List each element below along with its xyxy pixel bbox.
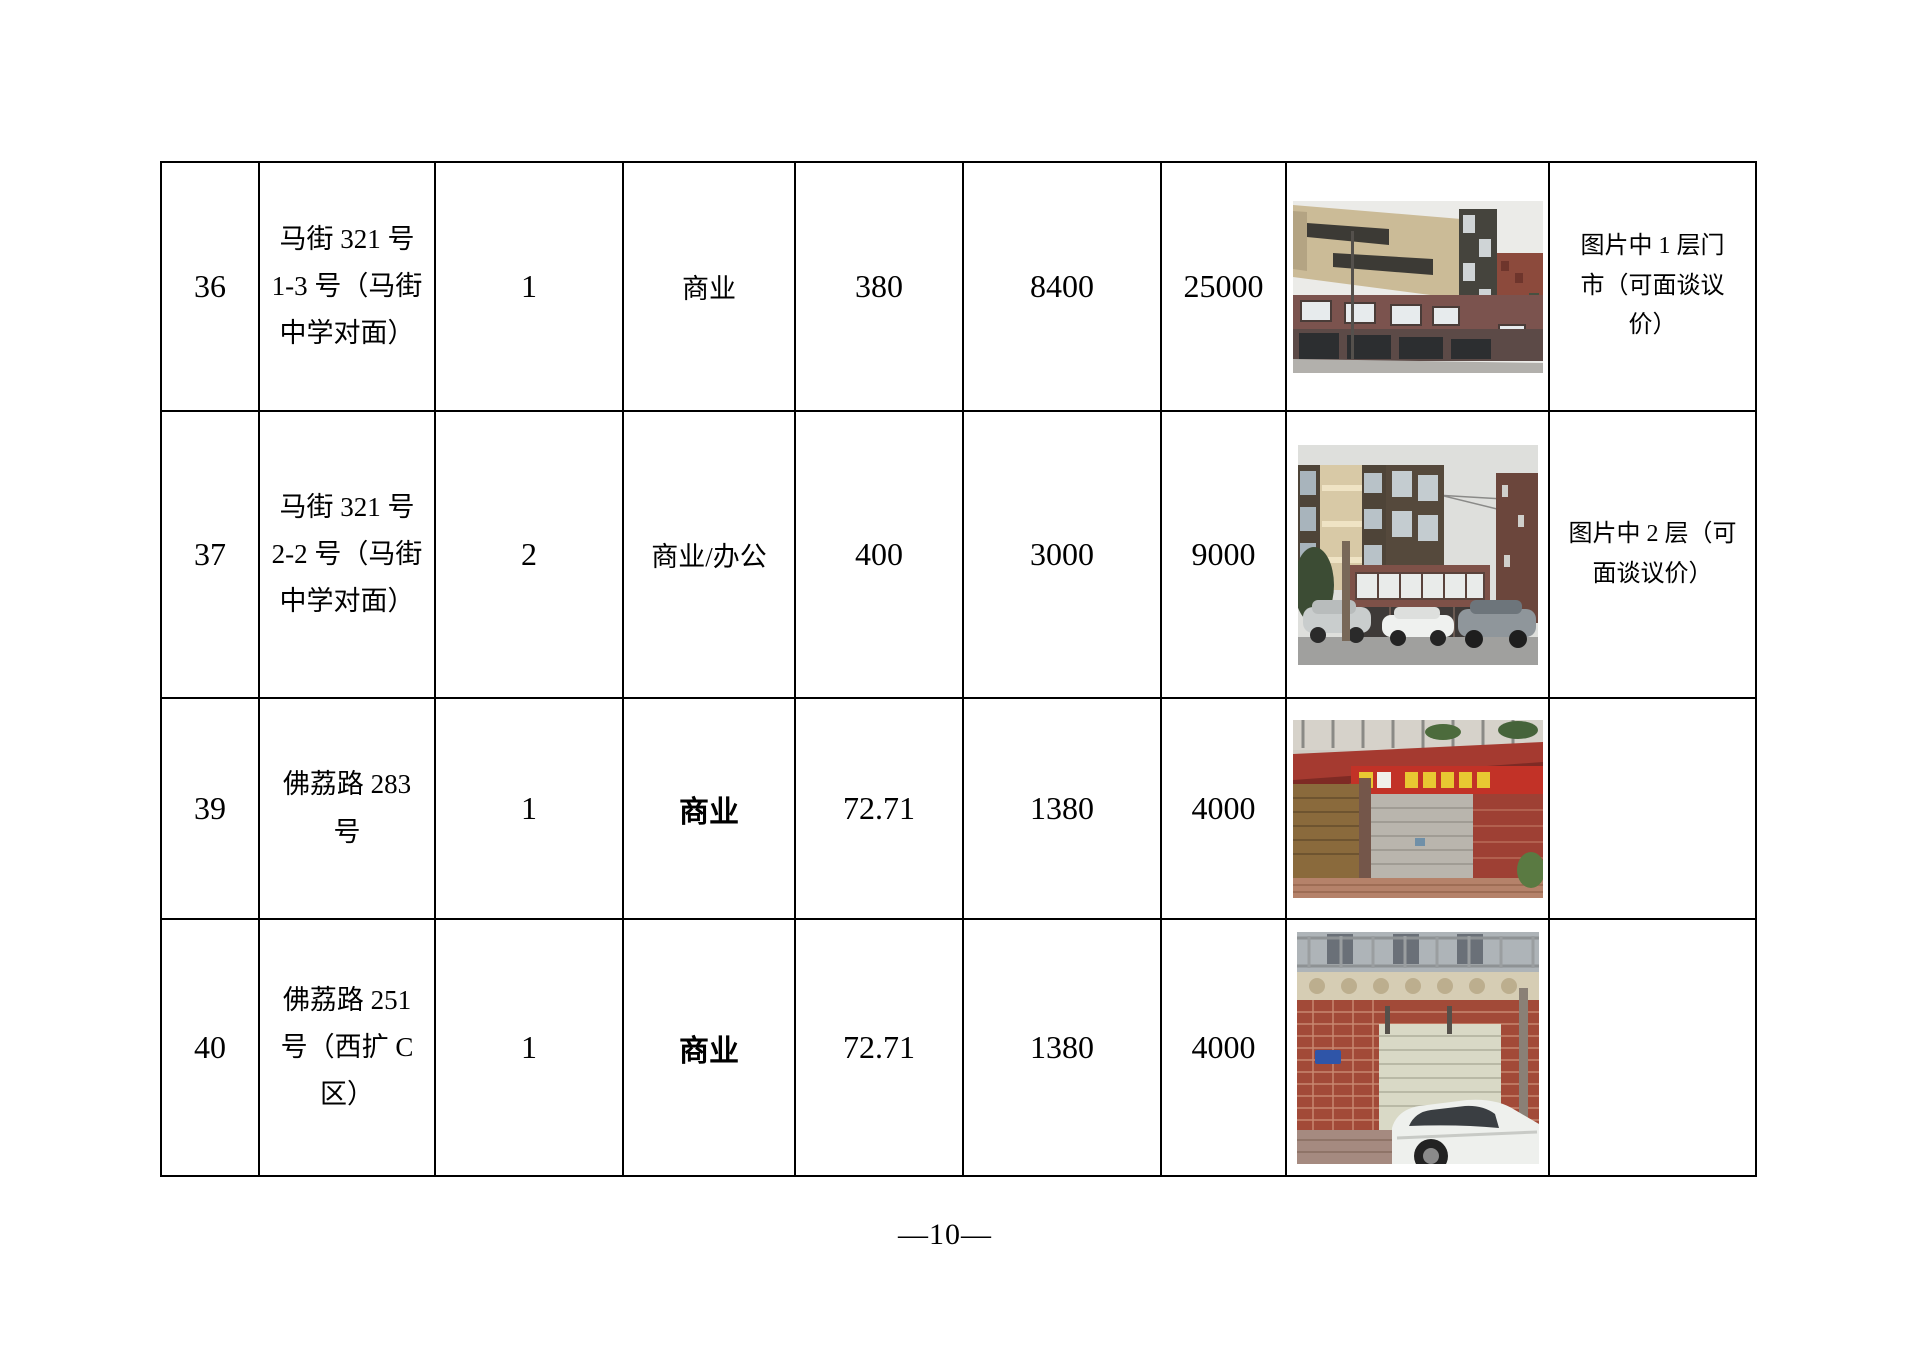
cell-row-number: 36 — [161, 162, 259, 411]
table-row: 40 佛荔路 251 号（西扩 C 区） 1 商业 72.71 1380 400… — [161, 919, 1756, 1176]
cell-remark — [1549, 919, 1756, 1176]
property-table: 36 马街 321 号 1-3 号（马街 中学对面） 1 商业 380 8400… — [160, 161, 1757, 1177]
cell-price: 4000 — [1161, 698, 1286, 919]
cell-address: 马街 321 号 1-3 号（马街 中学对面） — [259, 162, 435, 411]
cell-rent: 3000 — [963, 411, 1161, 698]
table-row: 36 马街 321 号 1-3 号（马街 中学对面） 1 商业 380 8400… — [161, 162, 1756, 411]
property-photo-40 — [1297, 932, 1539, 1164]
cell-row-number: 39 — [161, 698, 259, 919]
property-photo-39 — [1293, 720, 1543, 898]
property-photo-37 — [1298, 445, 1538, 665]
table-row: 39 佛荔路 283 号 1 商业 72.71 1380 4000 — [161, 698, 1756, 919]
cell-usage: 商业/办公 — [623, 411, 795, 698]
cell-rent: 8400 — [963, 162, 1161, 411]
cell-area: 72.71 — [795, 698, 963, 919]
cell-address: 佛荔路 283 号 — [259, 698, 435, 919]
cell-price: 25000 — [1161, 162, 1286, 411]
cell-rent: 1380 — [963, 698, 1161, 919]
cell-photo — [1286, 411, 1549, 698]
cell-area: 400 — [795, 411, 963, 698]
document-page: 36 马街 321 号 1-3 号（马街 中学对面） 1 商业 380 8400… — [0, 0, 1920, 1357]
cell-rent: 1380 — [963, 919, 1161, 1176]
cell-usage: 商业 — [623, 162, 795, 411]
cell-row-number: 40 — [161, 919, 259, 1176]
cell-photo — [1286, 698, 1549, 919]
cell-area: 380 — [795, 162, 963, 411]
table-row: 37 马街 321 号 2-2 号（马街 中学对面） 2 商业/办公 400 3… — [161, 411, 1756, 698]
cell-remark: 图片中 2 层（可 面谈议价） — [1549, 411, 1756, 698]
cell-area: 72.71 — [795, 919, 963, 1176]
cell-usage: 商业 — [623, 919, 795, 1176]
cell-floor: 2 — [435, 411, 623, 698]
cell-price: 9000 — [1161, 411, 1286, 698]
cell-floor: 1 — [435, 162, 623, 411]
cell-usage: 商业 — [623, 698, 795, 919]
cell-address: 佛荔路 251 号（西扩 C 区） — [259, 919, 435, 1176]
cell-photo — [1286, 162, 1549, 411]
cell-floor: 1 — [435, 698, 623, 919]
cell-photo — [1286, 919, 1549, 1176]
cell-address: 马街 321 号 2-2 号（马街 中学对面） — [259, 411, 435, 698]
cell-floor: 1 — [435, 919, 623, 1176]
property-photo-36 — [1293, 201, 1543, 373]
cell-price: 4000 — [1161, 919, 1286, 1176]
cell-remark — [1549, 698, 1756, 919]
page-number: —10— — [0, 1218, 1890, 1252]
cell-row-number: 37 — [161, 411, 259, 698]
cell-remark: 图片中 1 层门 市（可面谈议 价） — [1549, 162, 1756, 411]
